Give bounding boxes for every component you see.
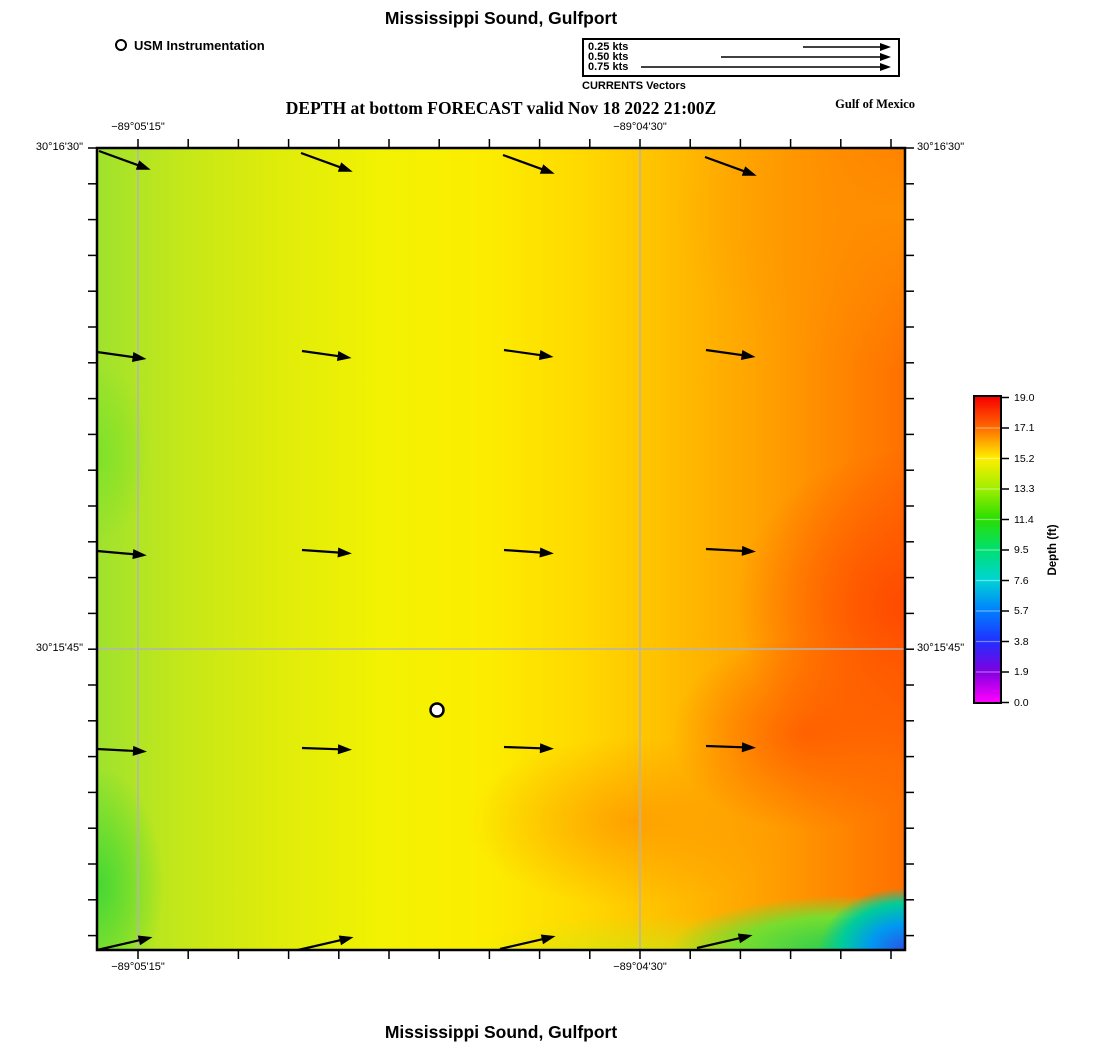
y-axis-label-left: 30°16'30" <box>5 141 83 153</box>
colorbar-tick-label: 9.5 <box>1014 544 1029 556</box>
station-marker-legend-icon <box>115 39 127 51</box>
y-axis-label-left: 30°15'45" <box>5 642 83 654</box>
footer-title: Mississippi Sound, Gulfport <box>97 1022 905 1043</box>
figure-page: Mississippi Sound, Gulfport USM Instrume… <box>0 0 1100 1050</box>
colorbar-tick-label: 0.0 <box>1014 697 1029 709</box>
depth-heatmap <box>97 148 905 950</box>
y-axis-label-right: 30°16'30" <box>917 141 995 153</box>
x-axis-label-bottom: −89°05'15" <box>96 961 180 973</box>
colorbar-axis-label: Depth (ft) <box>1047 508 1059 592</box>
vector-legend-caption: CURRENTS Vectors <box>582 80 686 92</box>
colorbar-tick-label: 3.8 <box>1014 636 1029 648</box>
colorbar-tick-label: 1.9 <box>1014 666 1029 678</box>
vector-legend-box: 0.25 kts 0.50 kts 0.75 kts <box>582 38 900 77</box>
colorbar-tick-label: 17.1 <box>1014 422 1034 434</box>
x-axis-label-bottom: −89°04'30" <box>598 961 682 973</box>
y-axis-label-right: 30°15'45" <box>917 642 995 654</box>
colorbar <box>973 395 1002 704</box>
x-axis-label-top: −89°04'30" <box>598 121 682 133</box>
colorbar-tick-label: 13.3 <box>1014 483 1034 495</box>
station-legend-label: USM Instrumentation <box>134 38 265 53</box>
colorbar-tick-label: 19.0 <box>1014 392 1034 404</box>
colorbar-tick-label: 5.7 <box>1014 605 1029 617</box>
vector-legend-label-075: 0.75 kts <box>588 62 628 72</box>
colorbar-tick-label: 11.4 <box>1014 514 1034 526</box>
page-title: Mississippi Sound, Gulfport <box>97 8 905 29</box>
x-axis-label-top: −89°05'15" <box>96 121 180 133</box>
region-label: Gulf of Mexico <box>750 97 915 112</box>
colorbar-tick-label: 7.6 <box>1014 575 1029 587</box>
colorbar-tick-label: 15.2 <box>1014 453 1034 465</box>
